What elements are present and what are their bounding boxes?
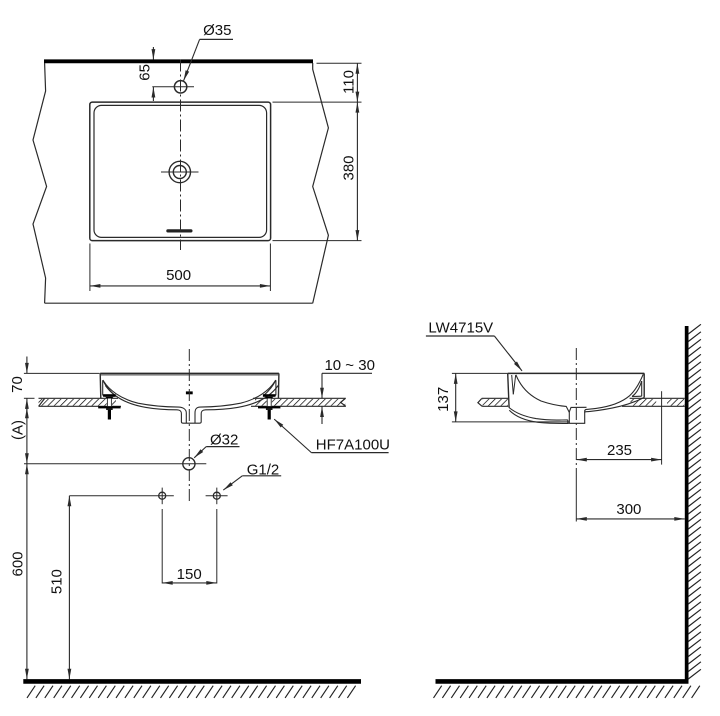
svg-text:137: 137 <box>435 387 452 412</box>
svg-text:(A): (A) <box>9 420 26 440</box>
svg-text:10 ~ 30: 10 ~ 30 <box>324 357 374 374</box>
svg-text:Ø32: Ø32 <box>210 432 238 449</box>
svg-text:LW4715V: LW4715V <box>428 320 493 337</box>
svg-text:Ø35: Ø35 <box>203 22 231 39</box>
svg-text:500: 500 <box>166 267 191 284</box>
svg-text:65: 65 <box>136 64 153 81</box>
svg-text:110: 110 <box>340 70 357 94</box>
svg-text:300: 300 <box>616 501 641 518</box>
svg-text:600: 600 <box>10 551 27 576</box>
svg-text:510: 510 <box>49 569 66 594</box>
svg-text:70: 70 <box>9 376 26 393</box>
svg-text:235: 235 <box>607 442 632 459</box>
svg-text:380: 380 <box>340 155 357 180</box>
svg-text:HF7A100U: HF7A100U <box>316 436 390 453</box>
svg-text:150: 150 <box>177 566 202 583</box>
